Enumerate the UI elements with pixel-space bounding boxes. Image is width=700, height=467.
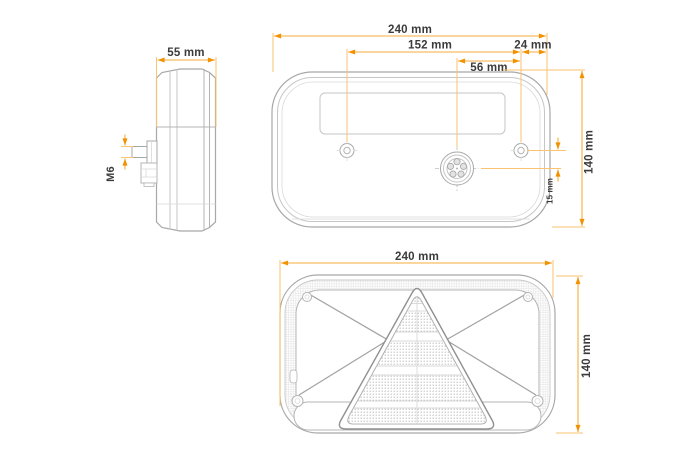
back-height-label: 140 mm xyxy=(584,130,596,174)
back-width-label: 240 mm xyxy=(388,24,432,36)
vertical-offset-label: 15 mm xyxy=(546,178,555,204)
holes-spacing-label: 152 mm xyxy=(408,40,452,52)
side-view-body-outline xyxy=(157,69,216,231)
connector-spacing-label: 56 mm xyxy=(470,62,507,74)
front-height-label: 140 mm xyxy=(581,334,593,378)
technical-drawing-canvas: 55 mm M6 xyxy=(0,0,700,467)
side-view-bolt xyxy=(132,141,157,187)
front-width-label: 240 mm xyxy=(395,251,439,263)
dim-front-height: 140 mm xyxy=(556,276,593,433)
bracket-foot xyxy=(144,183,154,187)
lamp-dimension-drawing: 55 mm M6 xyxy=(0,0,700,467)
bolt-thread-label: M6 xyxy=(105,166,117,182)
side-view: 55 mm M6 xyxy=(105,47,216,231)
bolt-collar xyxy=(147,141,157,163)
dim-bolt-thread: M6 xyxy=(105,135,133,182)
back-view: 240 mm 152 mm 24 mm 56 mm 140 mm xyxy=(272,24,596,227)
side-width-label: 55 mm xyxy=(167,47,204,59)
front-view-side-notch xyxy=(290,370,297,383)
dim-edge-offset: 24 mm xyxy=(514,40,551,53)
back-view-outer-shell xyxy=(272,72,550,227)
edge-offset-label: 24 mm xyxy=(514,40,551,52)
bolt-bracket xyxy=(141,163,157,183)
bolt-shaft xyxy=(132,147,147,158)
front-view: 240 mm 140 mm xyxy=(280,251,593,433)
